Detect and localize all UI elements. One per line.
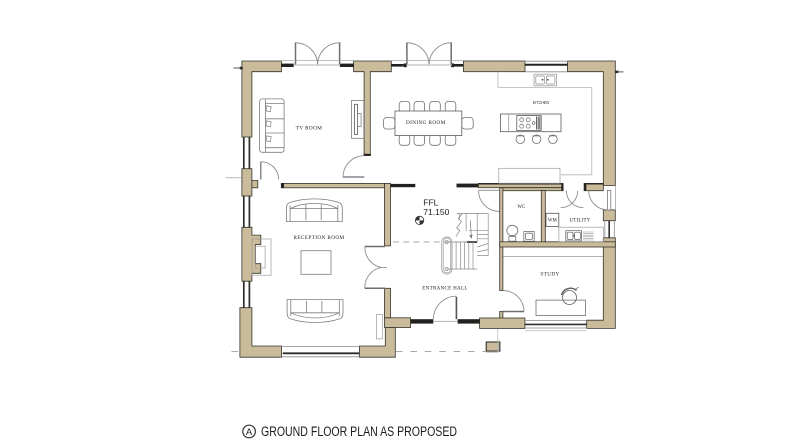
svg-text:KITCHEN: KITCHEN — [533, 100, 550, 105]
svg-text:WM: WM — [548, 219, 558, 224]
svg-text:TV ROOM: TV ROOM — [296, 125, 322, 131]
svg-text:RECEPTION ROOM: RECEPTION ROOM — [294, 235, 345, 241]
svg-text:UTILITY: UTILITY — [569, 218, 590, 223]
svg-text:ENTRANCE HALL: ENTRANCE HALL — [422, 285, 468, 291]
svg-text:71.150: 71.150 — [423, 207, 449, 217]
svg-text:STUDY: STUDY — [540, 271, 559, 277]
svg-text:DINING ROOM: DINING ROOM — [406, 120, 446, 126]
svg-text:GROUND FLOOR PLAN AS PROPOSED: GROUND FLOOR PLAN AS PROPOSED — [261, 424, 457, 439]
svg-text:WC: WC — [517, 205, 525, 210]
svg-text:A: A — [246, 427, 253, 438]
